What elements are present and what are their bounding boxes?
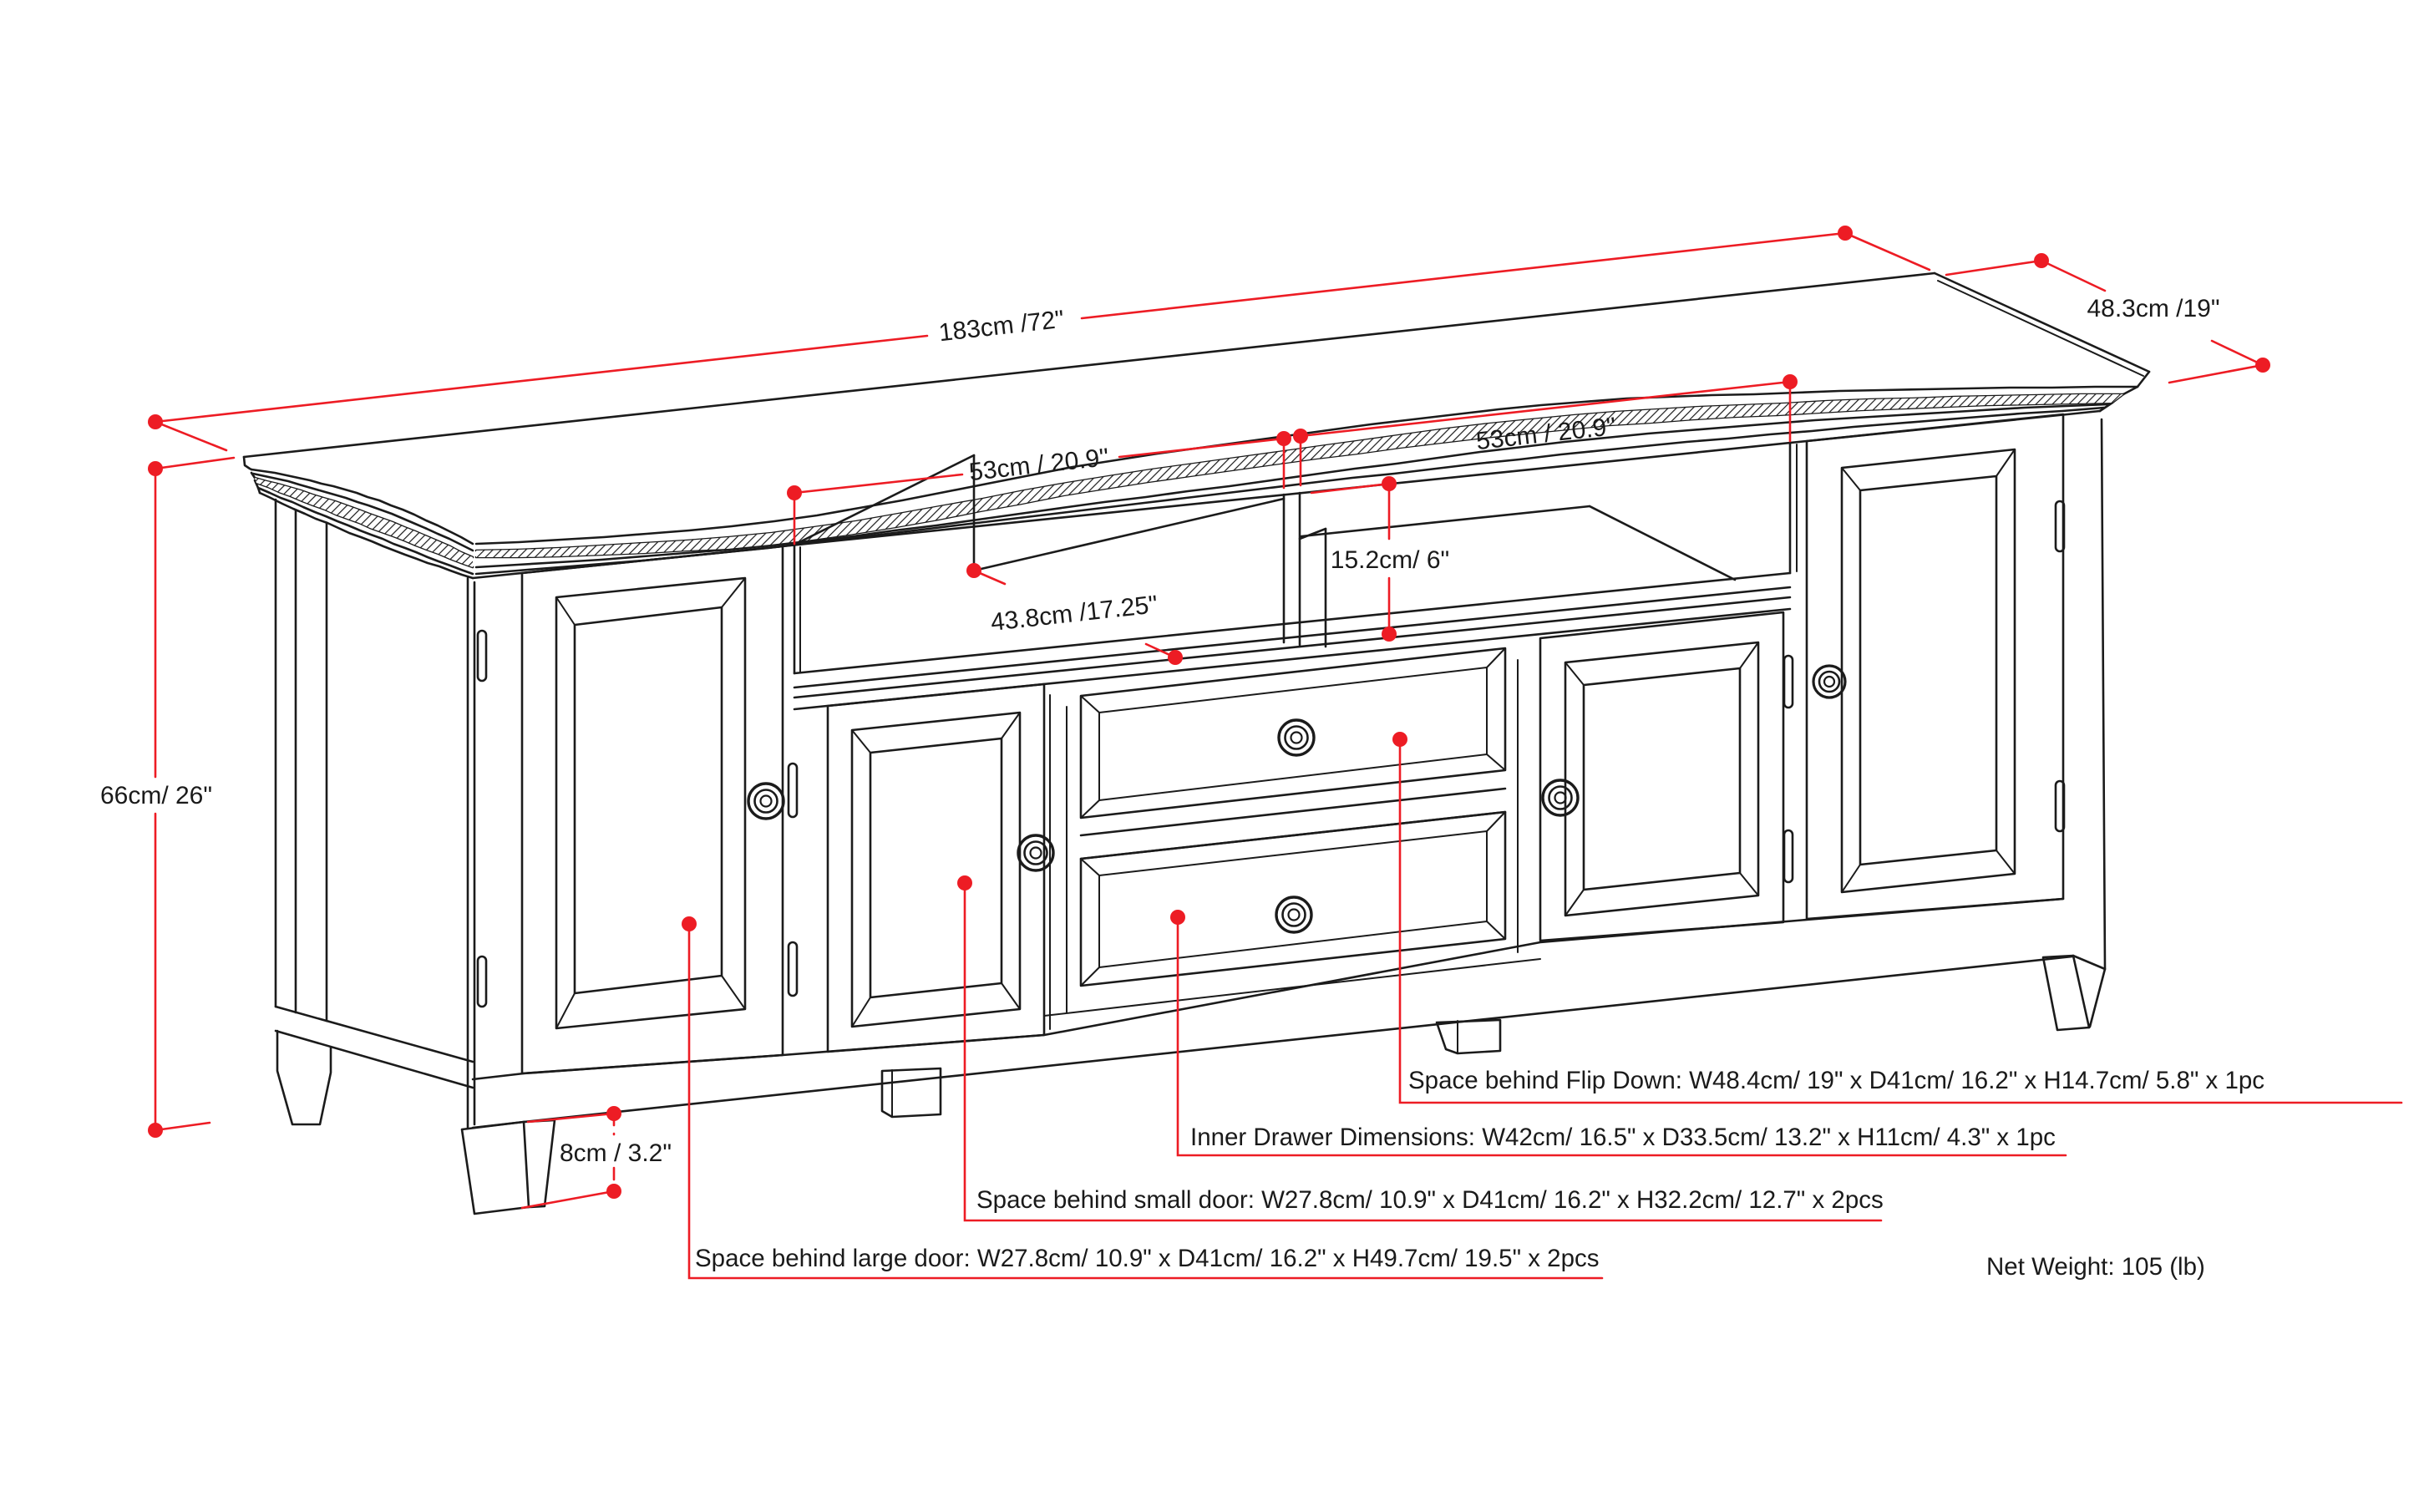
svg-text:Space behind small door: W27.8: Space behind small door: W27.8cm/ 10.9" … — [976, 1186, 1884, 1214]
svg-text:Space behind Flip Down: W48.4c: Space behind Flip Down: W48.4cm/ 19" x D… — [1408, 1067, 2264, 1094]
svg-text:48.3cm /19": 48.3cm /19" — [2087, 295, 2219, 322]
svg-text:Space behind large door: W27.8: Space behind large door: W27.8cm/ 10.9" … — [695, 1245, 1600, 1272]
svg-text:15.2cm/ 6": 15.2cm/ 6" — [1331, 546, 1449, 574]
svg-text:66cm/ 26": 66cm/ 26" — [100, 782, 212, 809]
svg-text:Net Weight: 105 (lb): Net Weight: 105 (lb) — [1986, 1253, 2205, 1281]
svg-text:8cm / 3.2": 8cm / 3.2" — [560, 1139, 672, 1167]
svg-text:Inner Drawer Dimensions: W42cm: Inner Drawer Dimensions: W42cm/ 16.5" x … — [1190, 1124, 2056, 1151]
